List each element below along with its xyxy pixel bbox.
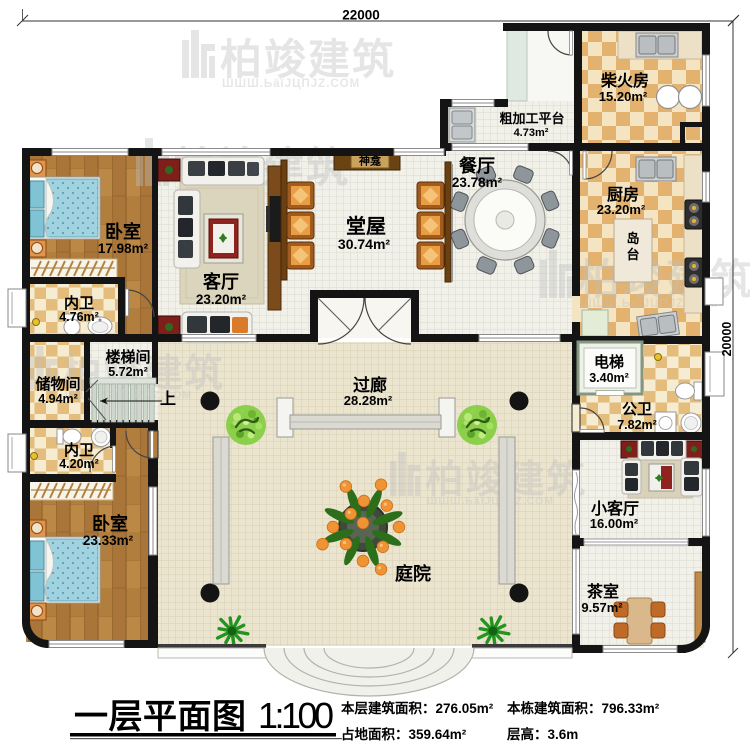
svg-text:22000: 22000	[342, 8, 380, 23]
svg-text:餐厅: 餐厅	[458, 155, 495, 176]
svg-text:5.72m²: 5.72m²	[108, 365, 148, 379]
svg-text:神龛: 神龛	[359, 154, 382, 168]
svg-text:电梯: 电梯	[594, 353, 624, 371]
svg-text:台: 台	[626, 247, 639, 262]
svg-text:储物间: 储物间	[35, 375, 80, 393]
svg-text:卧室: 卧室	[105, 221, 141, 242]
svg-text:占地面积：359.64m²: 占地面积：359.64m²	[341, 726, 467, 742]
svg-text:上: 上	[160, 390, 176, 408]
svg-text:23.20m²: 23.20m²	[196, 292, 247, 307]
svg-text:粗加工平台: 粗加工平台	[499, 111, 564, 126]
svg-text:16.00m²: 16.00m²	[590, 516, 639, 531]
svg-text:客厅: 客厅	[203, 271, 239, 292]
svg-text:7.82m²: 7.82m²	[617, 418, 657, 432]
svg-text:层高：3.6m: 层高：3.6m	[507, 726, 578, 742]
svg-text:岛: 岛	[626, 231, 639, 246]
svg-text:庭院: 庭院	[395, 563, 431, 584]
svg-text:23.33m²: 23.33m²	[83, 533, 134, 548]
svg-text:柴火房: 柴火房	[600, 71, 649, 90]
svg-text:本栋建筑面积：796.33m²: 本栋建筑面积：796.33m²	[507, 700, 660, 716]
svg-text:4.76m²: 4.76m²	[59, 310, 99, 324]
svg-text:23.78m²: 23.78m²	[452, 175, 503, 190]
svg-text:23.20m²: 23.20m²	[597, 202, 646, 217]
svg-text:4.20m²: 4.20m²	[59, 457, 99, 471]
svg-text:4.94m²: 4.94m²	[38, 392, 78, 406]
svg-text:一层平面图: 一层平面图	[74, 698, 246, 736]
svg-text:公卫: 公卫	[622, 401, 652, 418]
svg-text:1:100: 1:100	[258, 695, 334, 736]
svg-text:17.98m²: 17.98m²	[98, 241, 149, 256]
svg-text:3.40m²: 3.40m²	[589, 371, 629, 385]
svg-text:15.20m²: 15.20m²	[599, 89, 648, 104]
svg-text:堂屋: 堂屋	[346, 215, 386, 238]
svg-text:9.57m²: 9.57m²	[581, 600, 623, 615]
svg-text:30.74m²: 30.74m²	[338, 236, 390, 252]
svg-text:茶室: 茶室	[586, 582, 619, 601]
svg-text:20000: 20000	[720, 322, 734, 357]
svg-text:过廊: 过廊	[353, 375, 387, 395]
svg-text:28.28m²: 28.28m²	[344, 393, 393, 408]
svg-text:4.73m²: 4.73m²	[514, 127, 549, 139]
svg-text:楼梯间: 楼梯间	[105, 348, 150, 366]
svg-text:卧室: 卧室	[92, 513, 128, 534]
svg-text:本层建筑面积：276.05m²: 本层建筑面积：276.05m²	[341, 700, 494, 716]
